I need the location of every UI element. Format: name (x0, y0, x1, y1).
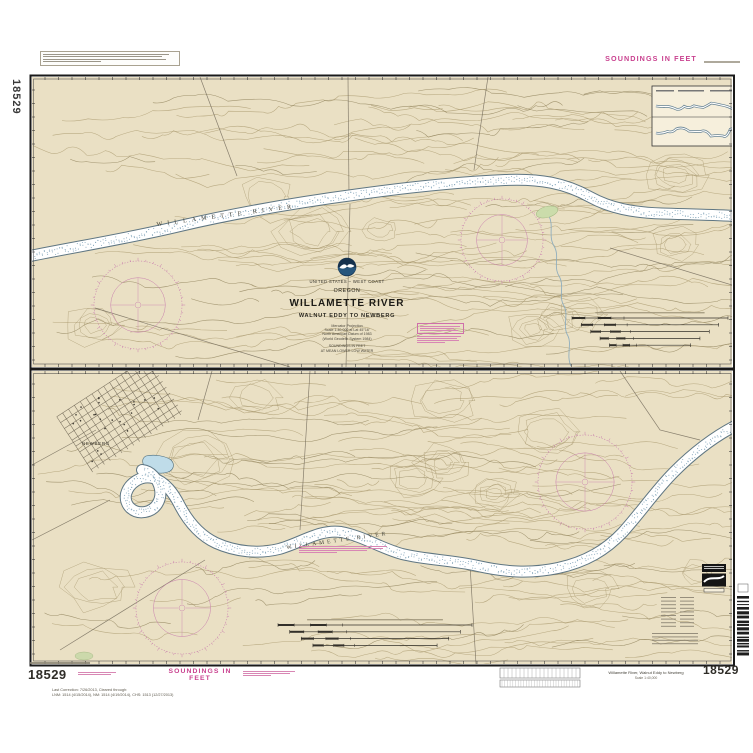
town-label-newberg: NEWBERG (82, 441, 110, 446)
chart-map-graphic (0, 0, 753, 753)
last-correction-note: Last Correction: 7/26/2013, Cleared thro… (52, 688, 173, 697)
chart-title: WILLAMETTE RIVER (277, 298, 417, 309)
bottom-caption-subtitle: Scale 1:40,000 (598, 676, 694, 681)
chart-number-left-margin: 18529 (10, 79, 22, 115)
magenta-note-margin-2 (243, 671, 295, 677)
title-state: OREGON (277, 288, 417, 294)
bottom-caption-title: Willamette River, Walnut Eddy to Newberg (598, 671, 694, 676)
chart-number-bottom-left: 18529 (28, 667, 67, 682)
magenta-note-upper (417, 323, 464, 344)
datum-line: AT MEAN LOWER LOW WATER (277, 349, 417, 353)
chart-number-bottom-right: 18529 (703, 663, 739, 677)
print-scale-ruler (500, 668, 580, 687)
chart-title-block: UNITED STATES – WEST COAST OREGON WILLAM… (277, 257, 417, 353)
nautical-chart-sheet: 18529 SOUNDINGS IN FEET UNITED STATES – … (0, 0, 753, 753)
noaa-logo-icon (277, 257, 417, 277)
title-agency-line: UNITED STATES – WEST COAST (277, 279, 417, 284)
index-inset-box (652, 86, 740, 146)
authorities-note (40, 51, 180, 66)
edition-note (704, 61, 740, 63)
soundings-note-bottom: SOUNDINGS IN FEET (158, 668, 242, 682)
wetland-patch (75, 652, 93, 660)
barcode (737, 584, 749, 655)
soundings-note-top: SOUNDINGS IN FEET (601, 54, 701, 63)
magenta-note-margin-1 (78, 672, 116, 676)
publisher-mark-row (30, 662, 94, 665)
chart-subtitle: WALNUT EDDY TO NEWBERG (277, 313, 417, 319)
lower-map-panel (32, 358, 753, 666)
magenta-note-lower (299, 546, 394, 554)
bottom-caption: Willamette River, Walnut Eddy to Newberg… (598, 671, 694, 680)
last-correction-line2: LNM: 1514 (4/15/2014), NM: 1514 (4/19/20… (52, 693, 173, 698)
projection-line: (World Geodetic System 1984) (277, 337, 417, 341)
